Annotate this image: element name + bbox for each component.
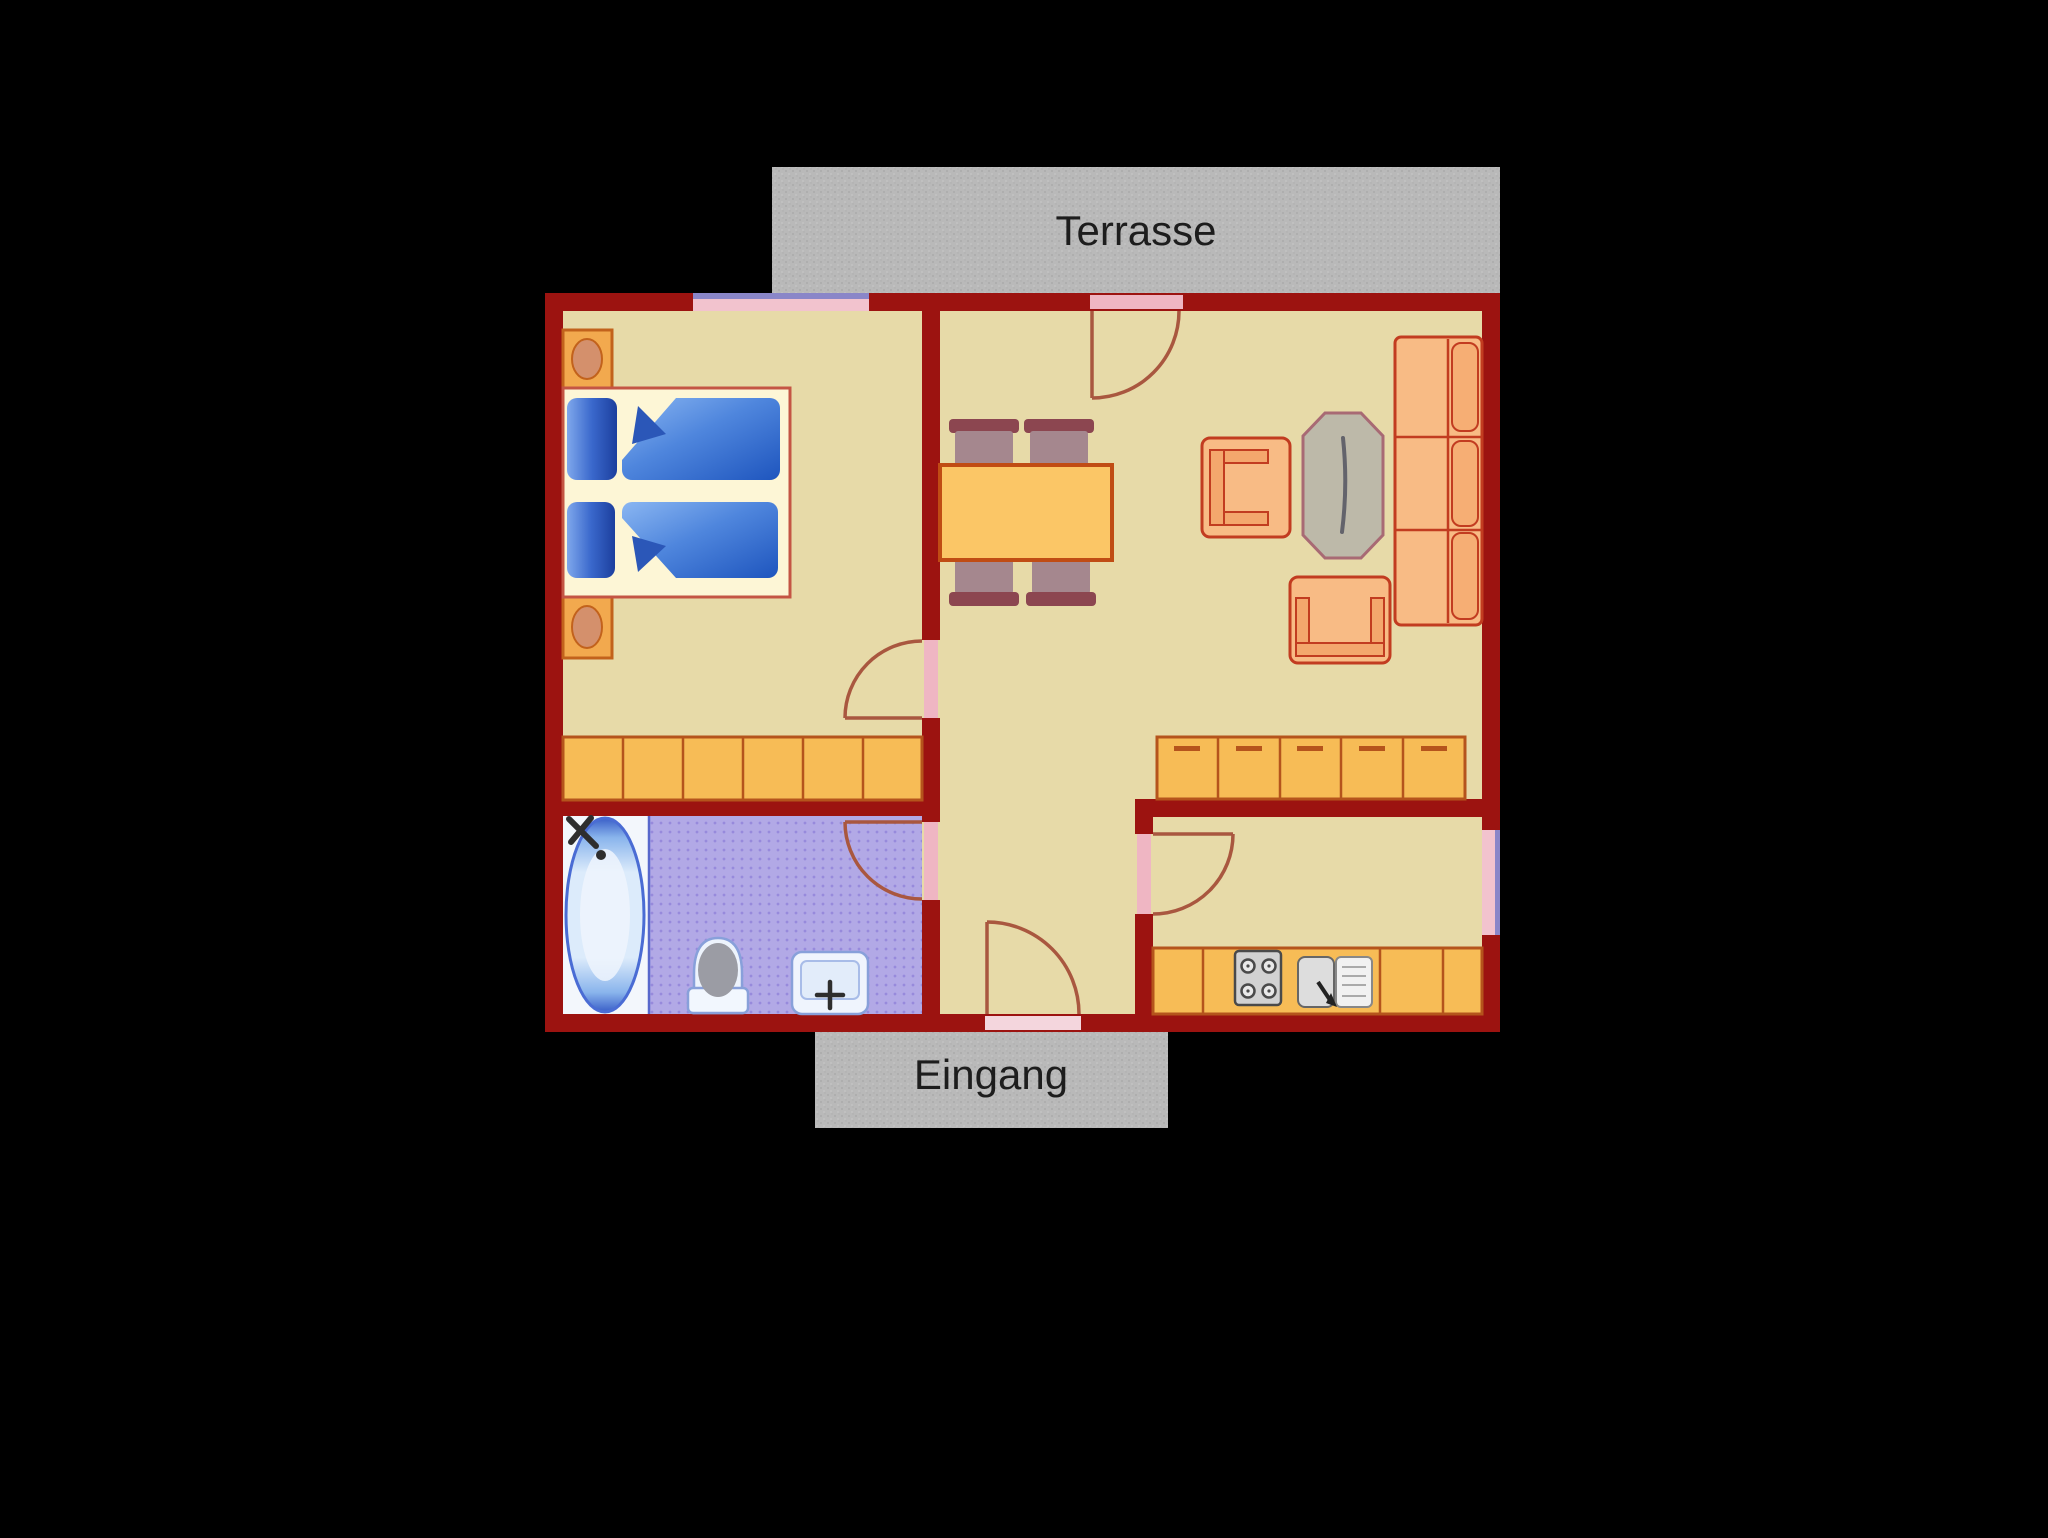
stove-top [1235,951,1281,1005]
kitchen-sink [1298,957,1372,1007]
terrace-area: Terrasse [772,167,1500,293]
bathtub-drain-icon [596,850,606,860]
pillow-lower [567,502,615,578]
bed-upper [567,398,780,480]
wall-bedroom-living-upper [922,311,940,640]
sofa [1395,337,1482,625]
wall-bedroom-living-mid [922,718,940,822]
armchair-bottom-backrest [1296,643,1384,656]
dining-chair-4-back [1026,592,1096,606]
bathroom [563,816,922,1014]
wall-bedroom-bathroom [563,800,922,816]
dining-chair-1 [955,431,1013,467]
dining-chair-2-back [1024,419,1094,433]
terrace-label: Terrasse [1055,207,1216,254]
wall-kitchen-left-lower [1135,914,1153,1014]
bathroom-door-leaf [924,822,938,900]
wall-kitchen-left-stub [1135,817,1153,834]
bed-lower [567,502,778,578]
entrance-area: Eingang [815,1032,1168,1128]
kitchen-door-leaf [1137,834,1151,914]
entrance-label: Eingang [914,1051,1068,1098]
floor-plan-screen: Terrasse Eingang [0,0,2048,1538]
dining-chair-3-back [949,592,1019,606]
dining-chair-2 [1030,431,1088,467]
coffee-table [1303,413,1383,558]
entrance-door-leaf [985,1016,1081,1030]
sofa-cushion-1 [1452,343,1478,431]
terrace-door-leaf [1090,295,1183,309]
bathtub-inner [580,849,630,981]
nightstand-top-lamp [572,339,602,379]
sofa-cushion-2 [1452,441,1478,526]
dining-chair-1-back [949,419,1019,433]
kitchen-window [1482,830,1500,935]
toilet-seat [698,943,738,997]
sofa-cushion-3 [1452,533,1478,619]
armchair-left-backrest [1210,450,1224,525]
bedroom-door-leaf [924,640,938,718]
wardrobe [563,737,922,800]
dining-chair-4 [1032,558,1090,594]
sideboard [1157,737,1465,799]
pillow-upper [567,398,617,480]
stove [1235,951,1281,1005]
wall-bathroom-hall-lower [922,900,940,1014]
nightstand-bottom-lamp [572,606,602,648]
kitchen [1153,948,1482,1014]
bedroom-window [693,293,869,311]
floor-plan: Terrasse Eingang [0,0,2048,1538]
dining-chair-3 [955,558,1013,594]
dining-table [940,465,1112,560]
washbasin [792,952,868,1014]
wall-living-kitchen [1135,799,1482,817]
sink-drainer [1336,957,1372,1007]
